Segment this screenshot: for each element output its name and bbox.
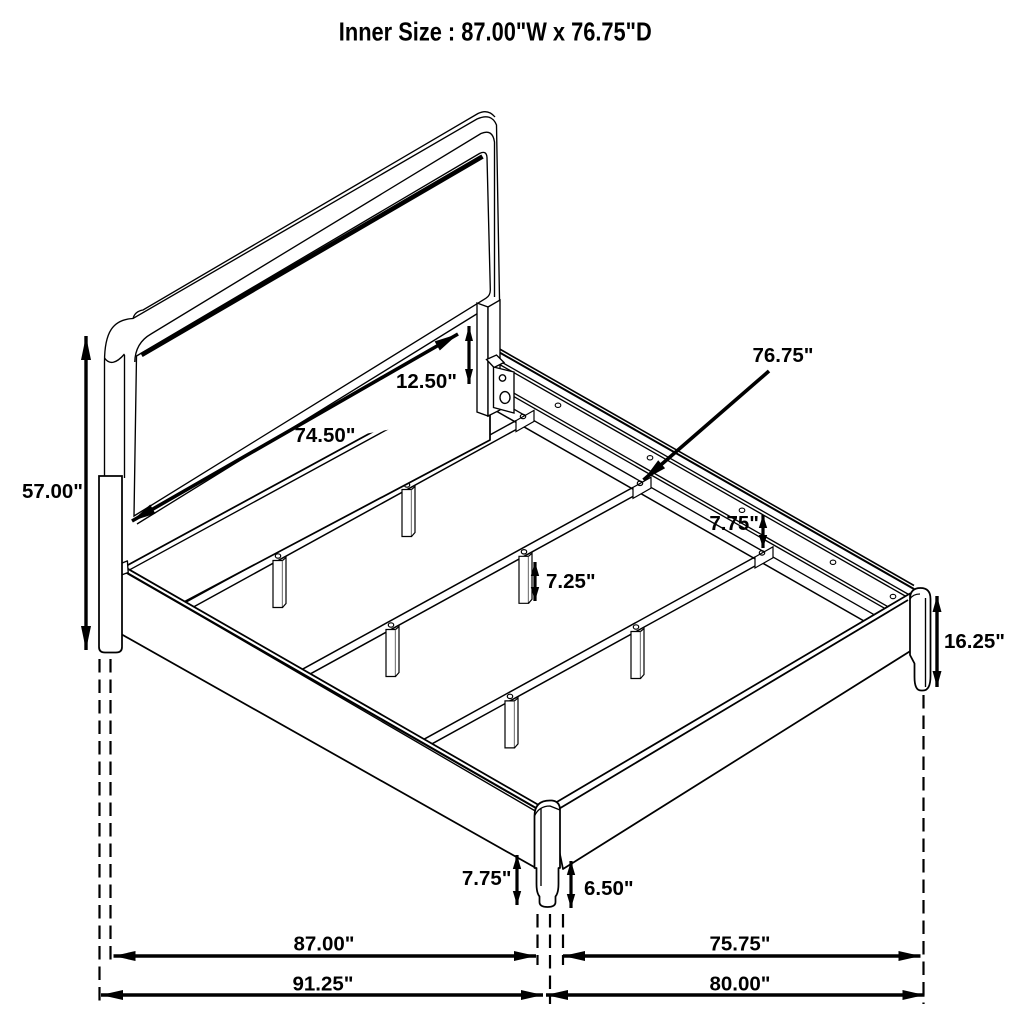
svg-text:12.50": 12.50"	[396, 370, 457, 393]
svg-text:7.75": 7.75"	[709, 512, 759, 535]
svg-text:87.00": 87.00"	[293, 933, 354, 956]
svg-text:57.00": 57.00"	[22, 480, 83, 503]
svg-text:7.25": 7.25"	[546, 570, 596, 593]
svg-text:Inner Size : 87.00"W x 76.75"D: Inner Size : 87.00"W x 76.75"D	[339, 16, 652, 46]
svg-text:6.50": 6.50"	[584, 877, 634, 900]
svg-text:91.25": 91.25"	[292, 973, 353, 996]
svg-text:76.75": 76.75"	[752, 344, 813, 367]
svg-text:16.25": 16.25"	[944, 630, 1005, 653]
svg-text:74.50": 74.50"	[294, 424, 355, 447]
svg-text:80.00": 80.00"	[709, 973, 770, 996]
svg-text:7.75": 7.75"	[462, 867, 512, 890]
svg-text:75.75": 75.75"	[709, 933, 770, 956]
